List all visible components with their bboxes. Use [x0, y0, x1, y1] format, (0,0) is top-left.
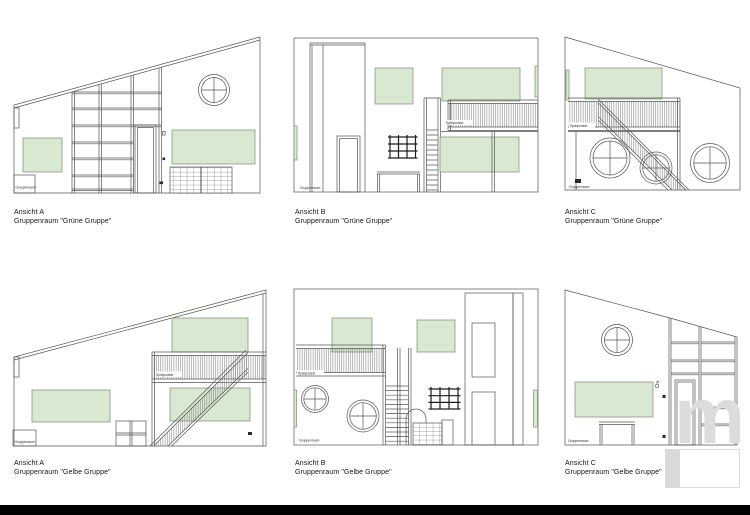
- socket: [663, 395, 666, 398]
- socket: [160, 182, 164, 185]
- radiator: [170, 167, 232, 193]
- green-sliver: [534, 390, 538, 427]
- green-board: [585, 68, 662, 99]
- watermark-white-box: [679, 449, 740, 488]
- roof-inner-line: [14, 40, 260, 108]
- green-sliver: [535, 66, 538, 97]
- green-board: [172, 318, 248, 352]
- view-label: Ansicht C: [565, 459, 662, 468]
- caption-gelbe-c: Ansicht C Gruppenraum "Gelbe Gruppe": [565, 459, 662, 477]
- green-board: [172, 130, 255, 164]
- room-label: Gruppenraum "Gelbe Gruppe": [565, 468, 662, 477]
- climbing-grid: [429, 387, 461, 410]
- door: [135, 125, 156, 193]
- caption-gruene-b: Ansicht B Gruppenraum "Grüne Gruppe": [295, 208, 392, 226]
- socket: [163, 158, 166, 161]
- elevation-gruene-ansicht-c: Spielpodest Gruppenraum: [560, 33, 745, 200]
- radiator: [413, 423, 442, 445]
- socket: [663, 435, 666, 438]
- caption-gruene-a: Ansicht A Gruppenraum "Grüne Gruppe": [14, 208, 111, 226]
- room-label: Gruppenraum "Grüne Gruppe": [14, 217, 111, 226]
- green-sliver: [294, 126, 297, 160]
- room-label: Gruppenraum "Gelbe Gruppe": [295, 468, 392, 477]
- cabinet: [14, 175, 35, 193]
- round-window: [302, 386, 329, 413]
- view-label: Ansicht B: [295, 459, 392, 468]
- socket: [248, 432, 252, 435]
- switch: [163, 132, 166, 136]
- caption-gruene-c: Ansicht C Gruppenraum "Grüne Gruppe": [565, 208, 662, 226]
- box: [442, 420, 453, 445]
- room-label: Gruppenraum: [299, 439, 320, 443]
- room-label: Gruppenraum: [15, 440, 36, 444]
- coat-hook: [655, 381, 659, 388]
- interior-wall: [669, 318, 671, 445]
- podest-label: Spielpodest: [298, 372, 315, 376]
- podest-label: Spielpodest: [156, 373, 173, 377]
- round-window: [347, 400, 379, 432]
- plan-sheet: Gruppenraum: [0, 0, 750, 515]
- room-label: Gruppenraum: [16, 186, 37, 190]
- podest-railing: [296, 345, 386, 445]
- round-window: [602, 325, 633, 356]
- podest-label: Spielpodest: [570, 124, 587, 128]
- elevation-gruene-ansicht-b: Spielpodest Gruppenraum: [290, 33, 545, 200]
- caption-gelbe-a: Ansicht A Gruppenraum "Gelbe Gruppe": [14, 459, 111, 477]
- wall-notch: [14, 108, 19, 128]
- socket: [575, 179, 581, 183]
- green-board: [442, 68, 520, 101]
- room-label: Gruppenraum: [569, 185, 590, 189]
- elevation-gelbe-ansicht-a: Spielpodest Gruppenraum: [10, 285, 270, 455]
- view-label: Ansicht C: [565, 208, 662, 217]
- room-label: Gruppenraum: [568, 439, 589, 443]
- view-label: Ansicht A: [14, 208, 111, 217]
- room-label: Gruppenraum "Grüne Gruppe": [565, 217, 662, 226]
- room-label: Gruppenraum "Gelbe Gruppe": [14, 468, 111, 477]
- green-board: [332, 318, 372, 352]
- ladder-stair: [386, 348, 411, 445]
- elevation-gruene-ansicht-a: Gruppenraum: [10, 30, 265, 200]
- view-label: Ansicht A: [14, 459, 111, 468]
- window-grid: [116, 421, 146, 446]
- green-board: [375, 68, 413, 104]
- green-board: [32, 390, 110, 422]
- green-sliver: [566, 70, 569, 100]
- table: [377, 172, 420, 192]
- watermark-gray-box: [665, 449, 679, 488]
- caption-gelbe-b: Ansicht B Gruppenraum "Gelbe Gruppe": [295, 459, 392, 477]
- podest-label: Spielpodest: [446, 121, 463, 125]
- green-board: [23, 138, 62, 172]
- wall-column: [310, 43, 365, 192]
- green-board: [440, 137, 519, 172]
- room-label: Gruppenraum: [300, 186, 321, 190]
- watermark-letter: m: [674, 376, 745, 456]
- round-window: [691, 144, 730, 183]
- bottom-black-bar: [0, 505, 750, 515]
- round-window: [199, 75, 230, 106]
- view-label: Ansicht B: [295, 208, 392, 217]
- podest-railing: [441, 100, 538, 132]
- round-window: [590, 138, 630, 178]
- green-sliver: [294, 390, 297, 427]
- climbing-grid: [388, 135, 418, 158]
- green-board: [417, 320, 455, 352]
- shelf-unit: [72, 67, 162, 193]
- elevation-gelbe-ansicht-b: Spielpodest Gruppenraum: [290, 285, 545, 450]
- ladder: [424, 98, 441, 192]
- tall-cupboard: [465, 293, 523, 445]
- room-label: Gruppenraum "Grüne Gruppe": [295, 217, 392, 226]
- green-board: [575, 382, 653, 417]
- table: [599, 422, 635, 445]
